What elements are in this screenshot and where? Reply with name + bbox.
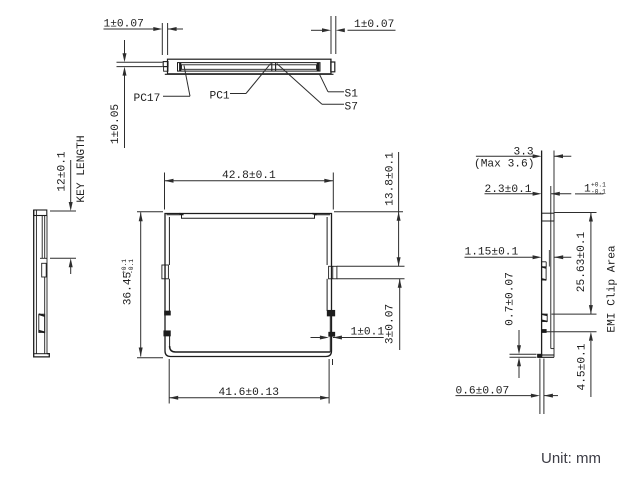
- svg-text:+0.1: +0.1: [591, 182, 606, 189]
- svg-text:1±0.05: 1±0.05: [110, 104, 122, 144]
- svg-text:Unit: mm: Unit: mm: [541, 450, 601, 467]
- svg-text:25.63±0.1: 25.63±0.1: [576, 232, 588, 293]
- svg-text:KEY LENGTH: KEY LENGTH: [76, 135, 88, 202]
- svg-text:0.7±0.07: 0.7±0.07: [505, 272, 517, 326]
- svg-text:S1: S1: [345, 89, 359, 101]
- svg-text:+0.1: +0.1: [121, 259, 128, 274]
- svg-text:S7: S7: [345, 102, 358, 114]
- svg-text:13.8±0.1: 13.8±0.1: [384, 152, 396, 206]
- svg-text:1±0.07: 1±0.07: [354, 19, 394, 31]
- svg-text:4.5±0.1: 4.5±0.1: [576, 343, 588, 390]
- svg-text:EMI Clip Area: EMI Clip Area: [607, 245, 619, 333]
- svg-text:-0.1: -0.1: [128, 259, 135, 274]
- svg-text:PC1: PC1: [210, 91, 230, 103]
- svg-text:41.6±0.13: 41.6±0.13: [219, 387, 279, 399]
- svg-text:(Max 3.6): (Max 3.6): [474, 159, 534, 171]
- svg-text:36.45: 36.45: [123, 272, 135, 306]
- svg-text:-0.1: -0.1: [591, 189, 606, 196]
- svg-text:3±0.07: 3±0.07: [384, 304, 396, 344]
- svg-text:1±0.1: 1±0.1: [351, 327, 385, 339]
- svg-text:PC17: PC17: [134, 93, 161, 105]
- svg-text:42.8±0.1: 42.8±0.1: [222, 170, 276, 182]
- svg-text:12±0.1: 12±0.1: [57, 151, 69, 192]
